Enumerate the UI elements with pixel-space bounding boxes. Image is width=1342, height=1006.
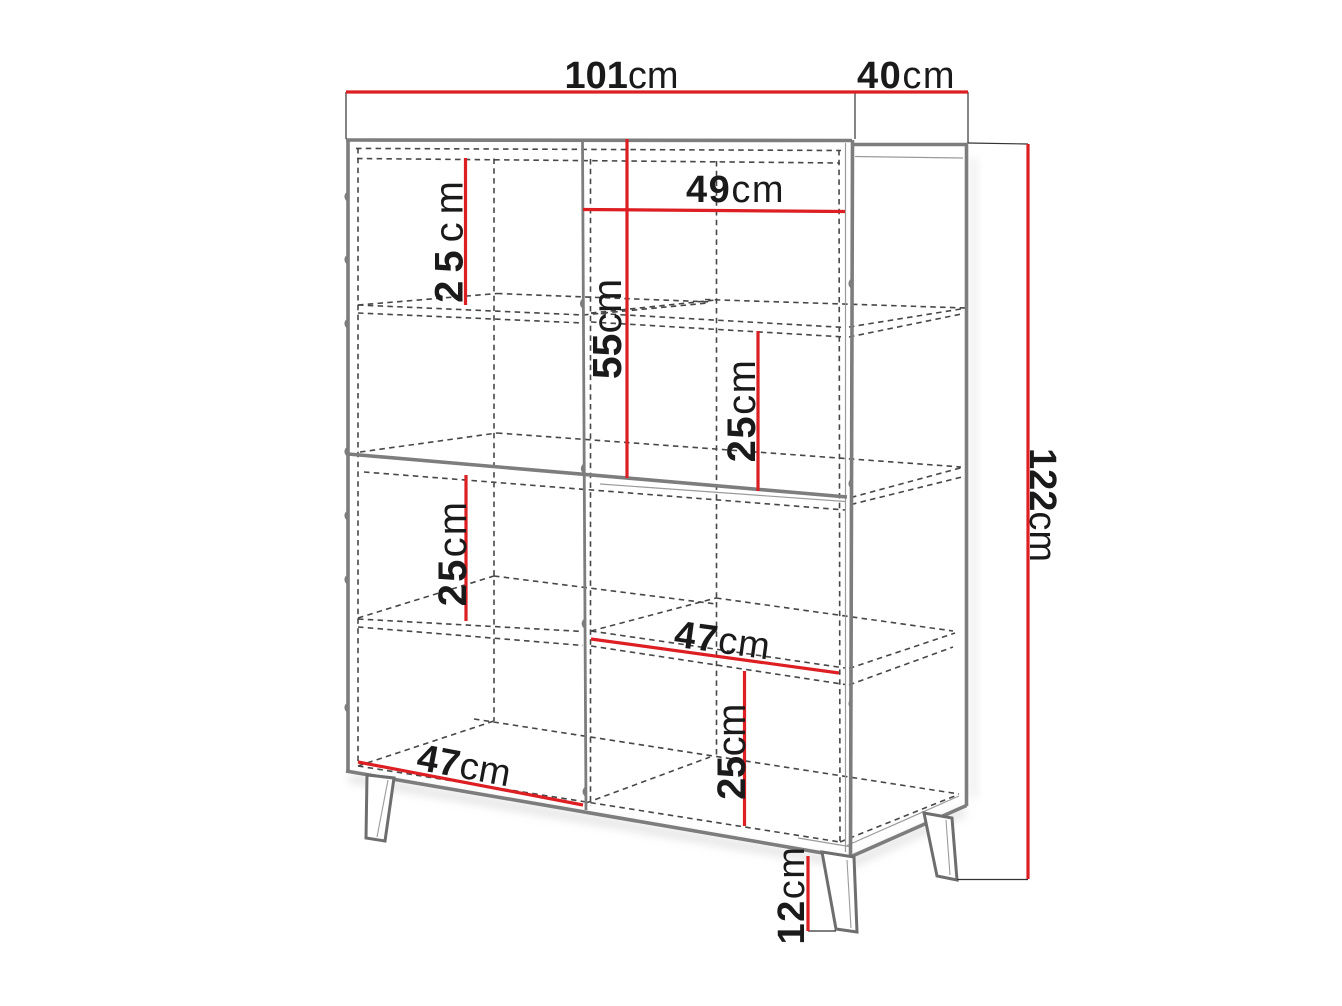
svg-text:40cm: 40cm [857, 55, 956, 97]
svg-text:25cm: 25cm [428, 173, 472, 303]
svg-text:49cm: 49cm [686, 169, 785, 211]
svg-text:25cm: 25cm [710, 704, 754, 800]
svg-text:12cm: 12cm [771, 846, 813, 945]
svg-text:101cm: 101cm [564, 55, 678, 97]
svg-text:25cm: 25cm [431, 500, 475, 607]
svg-text:55cm: 55cm [584, 279, 630, 379]
svg-text:122cm: 122cm [1021, 448, 1063, 562]
svg-text:25cm: 25cm [720, 359, 764, 463]
